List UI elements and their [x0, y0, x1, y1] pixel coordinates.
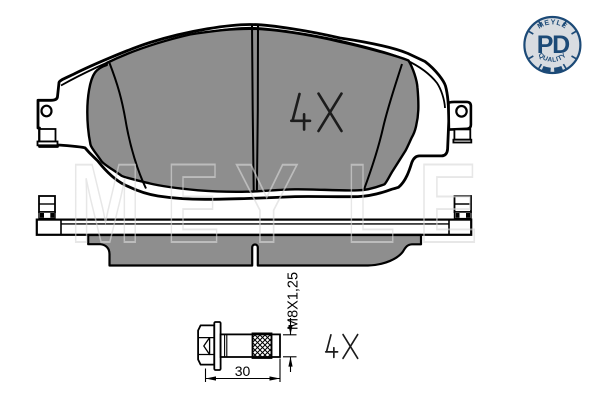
svg-text:PD: PD	[537, 31, 569, 59]
svg-text:L: L	[346, 141, 395, 266]
svg-text:M: M	[70, 142, 141, 267]
svg-text:M8X1,25: M8X1,25	[286, 272, 302, 330]
svg-text:30: 30	[235, 363, 251, 379]
svg-text:E: E	[166, 141, 220, 266]
svg-text:Y: Y	[235, 142, 298, 267]
svg-text:E: E	[418, 142, 478, 267]
